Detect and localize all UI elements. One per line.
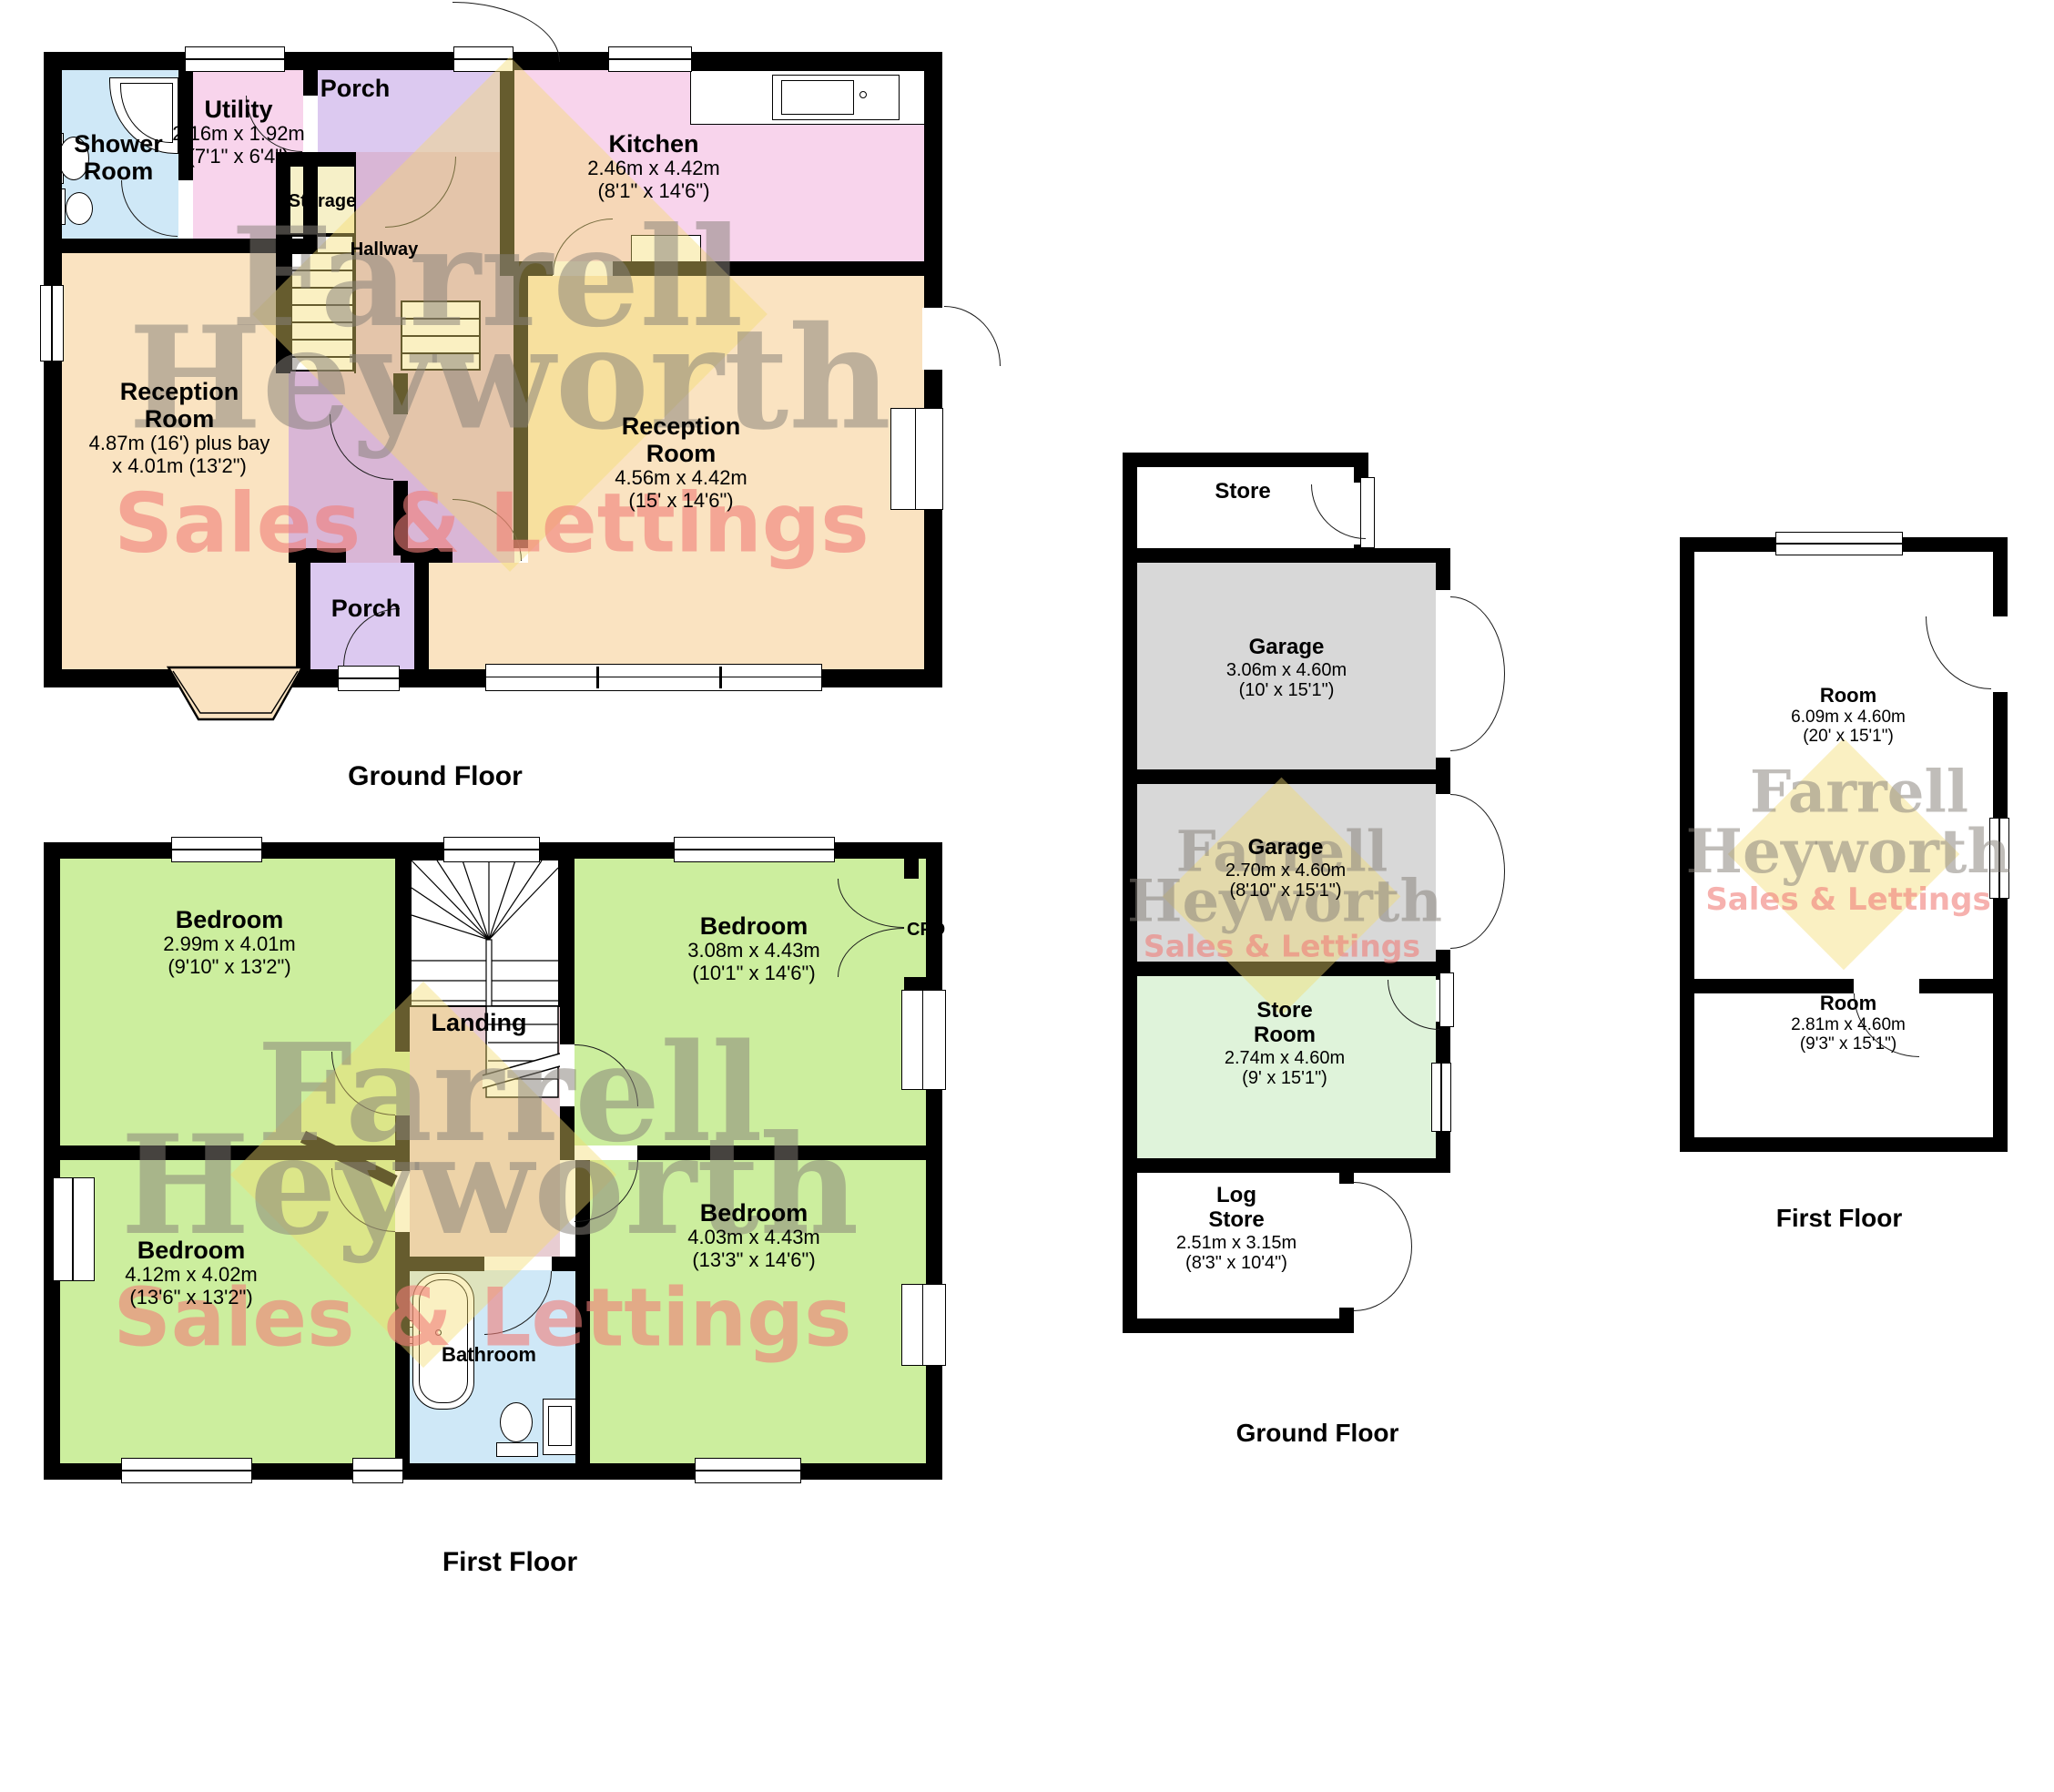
- window: [171, 837, 262, 862]
- kitchen-sink-icon: [781, 80, 854, 115]
- window: [121, 1458, 252, 1483]
- label-landing: Landing: [432, 1009, 527, 1036]
- wall: [303, 68, 318, 96]
- caption-house-ground-floor: Ground Floor: [348, 761, 523, 792]
- wall: [560, 1145, 575, 1160]
- wall: [1123, 453, 1368, 467]
- wall: [395, 1270, 410, 1463]
- window-mullion: [719, 667, 722, 688]
- floorplan-image: Farrell Heyworth Sales & Lettings Shower…: [0, 0, 2054, 1792]
- label-reception-left: ReceptionRoom 4.87m (16') plus bayx 4.01…: [89, 378, 270, 478]
- wall: [904, 859, 919, 879]
- label-log-store: LogStore 2.51m x 3.15m(8'3" x 10'4"): [1176, 1184, 1296, 1274]
- wall: [1993, 692, 2008, 820]
- wall: [395, 859, 410, 1052]
- wall: [289, 548, 346, 563]
- door-arc: [1450, 596, 1505, 674]
- wall: [44, 842, 60, 1480]
- label-garage-1: Garage3.06m x 4.60m(10' x 15'1"): [1226, 636, 1347, 701]
- caption-outbuilding-ground-floor: Ground Floor: [1236, 1419, 1399, 1448]
- wall: [513, 276, 528, 548]
- wall: [500, 68, 514, 276]
- wall: [926, 842, 942, 1480]
- toilet-icon: [66, 192, 93, 225]
- wall: [178, 239, 318, 253]
- window: [40, 285, 64, 361]
- door-arc: [1450, 674, 1505, 751]
- label-kitchen: Kitchen2.46m x 4.42m(8'1" x 14'6"): [587, 130, 720, 202]
- bathtub-icon: [419, 1279, 468, 1403]
- label-bedroom-tl: Bedroom2.99m x 4.01m(9'10" x 13'2"): [163, 906, 296, 978]
- wall: [1993, 537, 2008, 616]
- label-bathroom: Bathroom: [442, 1344, 536, 1367]
- label-porch-top: Porch: [320, 75, 391, 102]
- window: [485, 664, 822, 691]
- wall: [1436, 548, 1450, 590]
- kitchen-tap-icon: [859, 91, 867, 98]
- window: [901, 1284, 946, 1366]
- door-arc: [1450, 794, 1505, 871]
- watermark-diamond: [1728, 738, 1960, 971]
- wall: [354, 152, 356, 373]
- wall: [1919, 979, 1993, 993]
- label-shower-room: ShowerRoom: [74, 130, 163, 185]
- wall: [276, 152, 290, 373]
- wall: [393, 481, 408, 555]
- wall: [500, 261, 553, 276]
- door-arc: [1926, 616, 1991, 689]
- label-store: Store: [1215, 480, 1270, 504]
- label-reception-right: ReceptionRoom 4.56m x 4.42m(15' x 14'6"): [615, 412, 747, 513]
- label-hallway: Hallway: [351, 239, 418, 260]
- wall: [1137, 769, 1436, 784]
- label-room-top: Room6.09m x 4.60m(20' x 15'1"): [1791, 685, 1906, 746]
- door-arc: [1311, 484, 1366, 539]
- label-bedroom-tr: Bedroom3.08m x 4.43m(10'1" x 14'6"): [687, 912, 820, 984]
- wall: [560, 859, 575, 1044]
- wall: [637, 1145, 942, 1160]
- bay-window: [137, 663, 337, 736]
- wall: [395, 1257, 484, 1271]
- wall: [290, 233, 354, 235]
- wall: [1436, 784, 1450, 794]
- wall: [395, 1160, 410, 1171]
- label-bedroom-br: Bedroom4.03m x 4.43m(13'3" x 14'6"): [687, 1199, 820, 1271]
- window: [695, 1458, 801, 1483]
- wall: [1339, 1308, 1354, 1319]
- door-arc: [452, 2, 560, 62]
- watermark-text: Farrell: [1750, 759, 1968, 827]
- window: [1989, 818, 2009, 899]
- label-storage: Storage: [289, 191, 356, 211]
- toilet-icon: [500, 1402, 533, 1442]
- window: [185, 46, 285, 72]
- wall: [393, 373, 408, 414]
- door-arc: [944, 306, 1001, 366]
- door-arc: [1354, 1247, 1412, 1311]
- wall: [429, 548, 452, 563]
- wall: [1680, 1137, 2008, 1152]
- label-store-room: StoreRoom 2.74m x 4.60m(9' x 15'1"): [1225, 999, 1345, 1089]
- wall: [1339, 1173, 1354, 1184]
- label-porch-bottom: Porch: [331, 595, 402, 622]
- label-garage-2: Garage2.70m x 4.60m(8'10" x 15'1"): [1225, 836, 1346, 901]
- wall: [1137, 548, 1450, 563]
- wall: [296, 563, 310, 669]
- wall: [1137, 1158, 1450, 1173]
- window-mullion: [596, 667, 599, 688]
- caption-house-first-floor: First Floor: [442, 1547, 577, 1578]
- room-reception-right-ext: [429, 563, 528, 669]
- caption-outbuilding-first-floor: First Floor: [1776, 1204, 1902, 1233]
- window: [1775, 532, 1903, 555]
- wall: [924, 52, 942, 687]
- watermark-text: Heyworth: [1686, 816, 2011, 887]
- stairs: [401, 300, 481, 371]
- drain-icon: [435, 1329, 442, 1336]
- wall: [1680, 537, 1694, 1152]
- window: [1431, 1063, 1451, 1132]
- label-room-bottom: Room2.81m x 4.60m(9'3" x 15'1"): [1791, 993, 1906, 1054]
- wall: [613, 261, 926, 276]
- wall: [1993, 897, 2008, 1137]
- wall: [1436, 758, 1450, 784]
- window: [901, 990, 946, 1090]
- window: [608, 46, 692, 72]
- wall: [401, 548, 429, 563]
- window: [443, 837, 540, 862]
- wall: [560, 1106, 575, 1145]
- stairs: [410, 859, 560, 1150]
- door-arc: [1450, 871, 1505, 949]
- label-utility: Utility2.16m x 1.92m(7'1" x 6'4"): [172, 96, 305, 168]
- label-bedroom-bl: Bedroom4.12m x 4.02m(13'6" x 13'2"): [125, 1237, 258, 1308]
- wall: [552, 1257, 590, 1271]
- window: [53, 1177, 95, 1281]
- door-opening: [922, 308, 944, 370]
- toilet-icon: [496, 1442, 538, 1457]
- window: [890, 408, 943, 510]
- window: [352, 1458, 403, 1483]
- window: [674, 837, 835, 862]
- wall: [1123, 1319, 1354, 1333]
- wall: [1123, 453, 1137, 1333]
- wall: [414, 563, 429, 669]
- wall: [1137, 962, 1436, 976]
- stairs: [290, 235, 354, 372]
- sink-icon: [548, 1406, 572, 1446]
- wall: [395, 1115, 410, 1145]
- door-leaf: [1439, 972, 1454, 1027]
- door-arc: [1354, 1182, 1412, 1247]
- door-sill: [338, 666, 400, 691]
- wall: [44, 52, 62, 687]
- watermark-text: Sales & Lettings: [1705, 881, 1990, 918]
